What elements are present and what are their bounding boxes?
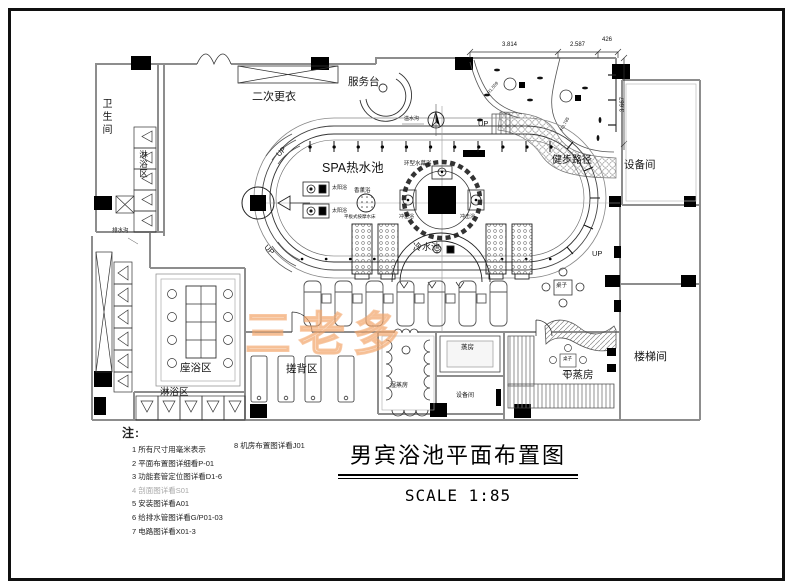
- sun-bath-loungers: [303, 182, 329, 218]
- label-spa-pool: SPA热水池: [322, 162, 384, 175]
- dim-top-mid: 2.587: [570, 42, 585, 48]
- label-toilet: 卫生间: [100, 98, 110, 137]
- note-item: 3 功能套管定位图详看D1-6: [132, 471, 362, 482]
- label-overflow: 溢水沟: [404, 117, 419, 122]
- label-changing: 二次更衣: [252, 92, 296, 103]
- label-impact-2: 冲击浴: [460, 215, 475, 220]
- note-item: 7 电路图详看X01-3: [132, 526, 362, 537]
- aroma-bath: [357, 194, 375, 212]
- label-massage-bed: 平板式按摩水床: [344, 215, 376, 220]
- label-cold-pool: 冷水池: [413, 243, 440, 252]
- toilet-stalls: [116, 127, 156, 232]
- drawing-scale: SCALE 1:85: [338, 486, 578, 505]
- note-item: 2 平面布置图详细看P-01: [132, 458, 362, 469]
- title-block: 男宾浴池平面布置图 SCALE 1:85: [338, 438, 578, 505]
- label-aroma: 香薰浴: [354, 189, 371, 195]
- north-arrow-icon: [428, 104, 444, 136]
- label-shower-bottom: 淋浴区: [160, 388, 189, 398]
- bottom-shower-stalls: [136, 396, 245, 420]
- wavy-counter: [536, 320, 616, 351]
- label-steam: 蒸房: [461, 345, 474, 352]
- title-rule-1: [338, 474, 578, 476]
- label-sit-bath: 座浴区: [180, 363, 212, 374]
- dim-right-side: 3.667: [620, 97, 626, 112]
- label-up-3: UP: [478, 120, 488, 128]
- drawing-title: 男宾浴池平面布置图: [338, 438, 578, 470]
- label-table-upper: 桌子: [556, 284, 567, 290]
- label-dry-steam: 干蒸房: [562, 370, 594, 381]
- wall-equipment-boxes: [607, 246, 621, 372]
- label-sun-1: 太阳浴: [332, 186, 347, 191]
- dim-top-right: 426: [602, 37, 612, 43]
- label-service-desk: 服务台: [348, 77, 380, 88]
- label-ring-curtain: 环型水幕浴: [404, 162, 432, 168]
- equipment-room-liner: [626, 84, 696, 201]
- label-walk-path: 健步路径: [552, 156, 592, 166]
- label-up-4: UP: [592, 250, 602, 258]
- label-scrub: 搓背区: [286, 364, 318, 375]
- note-item-8: 8 机房布置图详看J01: [234, 440, 305, 451]
- label-wet-steam: 湿蒸房: [390, 383, 408, 389]
- title-rule-2: [338, 478, 578, 479]
- label-shower-top: 淋浴区: [139, 150, 148, 179]
- label-equipment-right: 设备间: [624, 160, 656, 171]
- note-item: 6 给排水管图详看G/P01-03: [132, 512, 362, 523]
- drawing-sheet: 卫生间 淋浴区 二次更衣 服务台 健步路径 设备间 SPA热水池 环型水幕浴 香…: [0, 0, 790, 586]
- label-equipment-small: 设备间: [456, 393, 474, 399]
- dim-top-left: 3.814: [502, 42, 517, 48]
- cold-pool: [392, 233, 490, 288]
- label-impact-1: 冲击浴: [399, 215, 414, 220]
- notes-heading: 注:: [122, 424, 362, 441]
- label-table-dry: 桌子: [563, 357, 572, 362]
- watermark: 三老多: [245, 298, 407, 364]
- note-item: 4 剖面图详看S01: [132, 485, 362, 496]
- label-stair: 楼梯间: [634, 352, 667, 363]
- label-drain: 排水沟: [112, 229, 129, 235]
- note-item: 5 安装图详看A01: [132, 498, 362, 509]
